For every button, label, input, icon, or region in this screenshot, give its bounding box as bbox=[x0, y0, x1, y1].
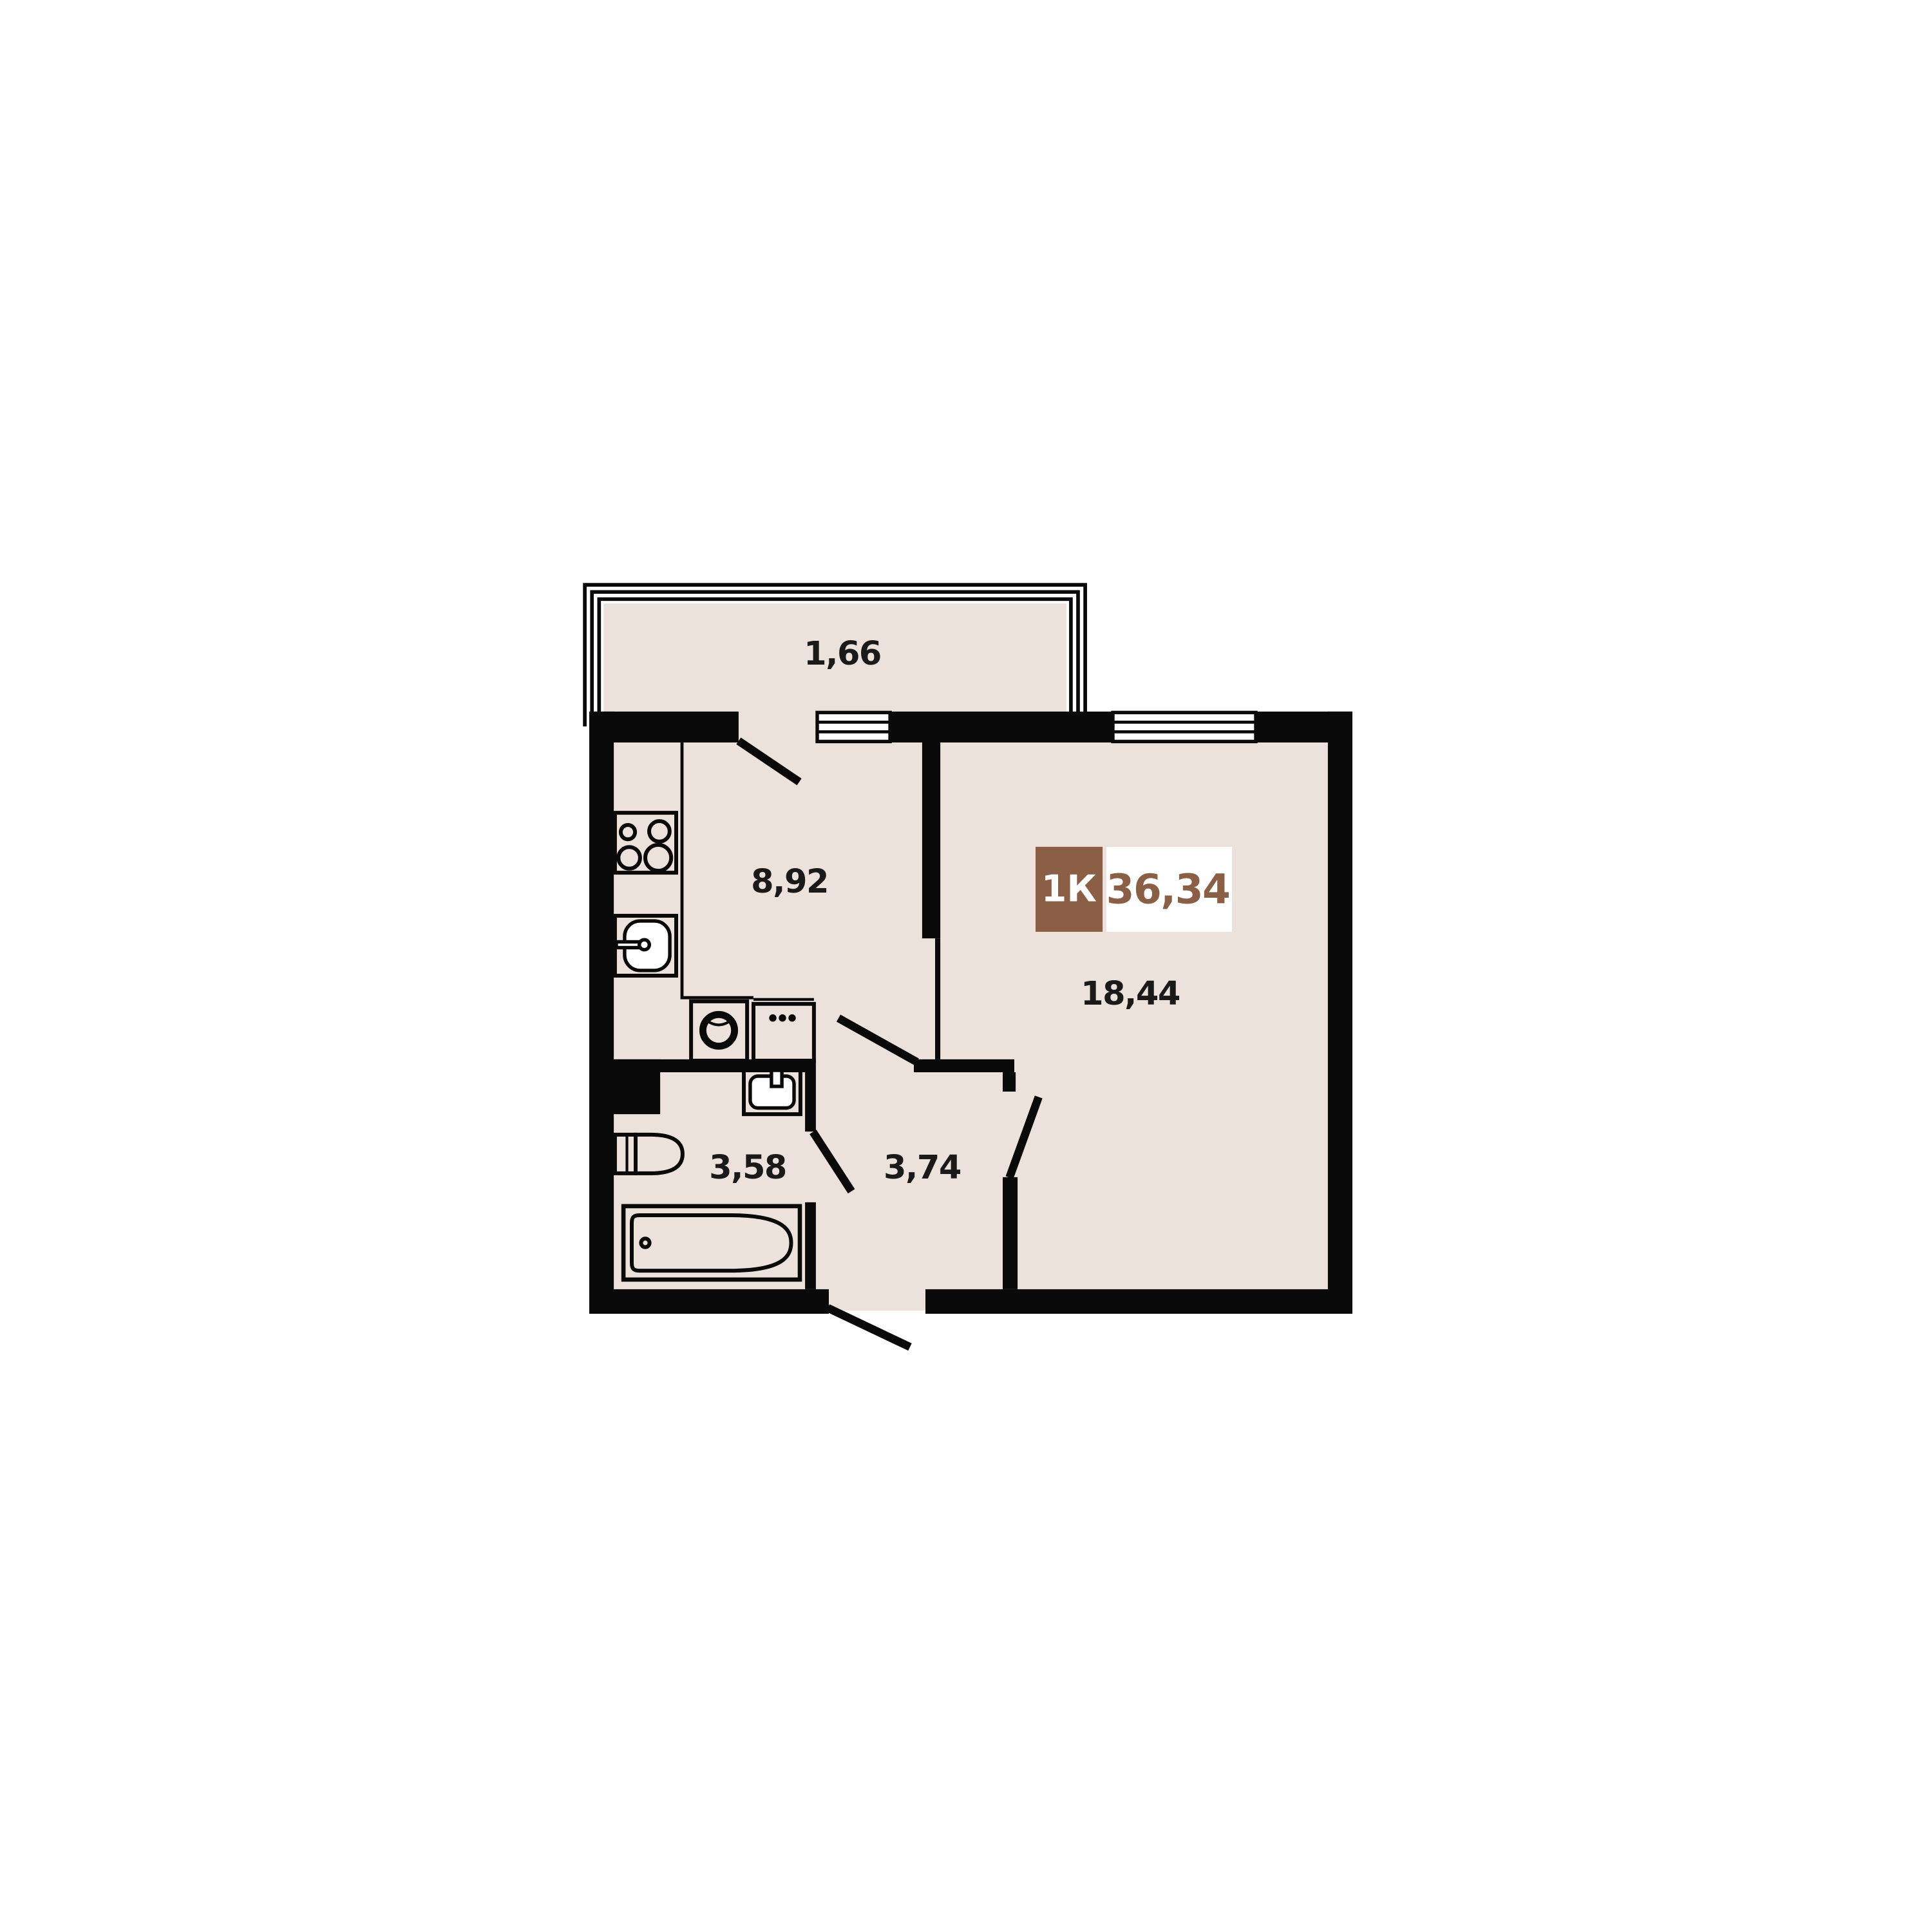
appliance-knob bbox=[769, 1014, 776, 1021]
bathroom-area-label: 3,58 bbox=[709, 1149, 786, 1187]
kitchen-area-label: 8,92 bbox=[751, 863, 828, 901]
wall-kitchen-living-thin bbox=[935, 938, 940, 1059]
toilet-bowl bbox=[636, 1135, 683, 1173]
appliance-knob bbox=[788, 1014, 795, 1021]
bathtub-basin bbox=[632, 1215, 791, 1271]
wall-bathroom-right-upper bbox=[805, 1072, 816, 1132]
balcony-door-threshold-floor bbox=[739, 711, 817, 743]
appliance-body bbox=[753, 1004, 814, 1061]
kitchen-sink-icon bbox=[615, 916, 676, 976]
toilet-tank bbox=[615, 1135, 636, 1173]
appliance-knob bbox=[779, 1014, 786, 1021]
bathtub-drain bbox=[641, 1238, 649, 1247]
hallway-area-label: 3,74 bbox=[884, 1149, 961, 1187]
burner bbox=[621, 825, 635, 839]
wall-hallway-top bbox=[914, 1059, 1014, 1072]
wall-bathroom-right-lower bbox=[805, 1202, 816, 1289]
floor-plan: 1К 36,34 1,66 8,92 18,44 3,58 3,74 bbox=[0, 0, 1932, 1932]
balcony-area-label: 1,66 bbox=[804, 635, 881, 673]
area-badge: 1К 36,34 bbox=[1036, 847, 1232, 932]
living-room-area-label: 18,44 bbox=[1081, 975, 1180, 1013]
wall-bottom-left bbox=[589, 1289, 829, 1314]
wall-kitchen-living bbox=[922, 742, 940, 938]
badge-total-area: 36,34 bbox=[1106, 866, 1230, 913]
living-room-window bbox=[1113, 712, 1256, 741]
wall-bathroom-shaft-block bbox=[589, 1059, 660, 1114]
badge-room-type: 1К bbox=[1041, 868, 1097, 911]
entrance-threshold-floor bbox=[829, 1289, 925, 1311]
wall-right bbox=[1328, 712, 1352, 1314]
stove-icon bbox=[615, 813, 676, 873]
wall-left bbox=[589, 712, 614, 1314]
burner bbox=[618, 847, 640, 869]
floor-plan-canvas: 1К 36,34 1,66 8,92 18,44 3,58 3,74 bbox=[0, 0, 1932, 1932]
burner bbox=[649, 821, 670, 842]
bath-sink-tap bbox=[772, 1070, 782, 1086]
toilet-icon bbox=[615, 1135, 683, 1173]
burner bbox=[645, 845, 671, 871]
window-icon bbox=[817, 712, 890, 741]
kitchen-window bbox=[817, 712, 890, 741]
wall-top-center bbox=[890, 712, 1113, 743]
entrance-door-swing-icon bbox=[828, 1308, 911, 1347]
sink-tap-knob bbox=[639, 940, 650, 950]
counter-appliance-icon bbox=[753, 999, 814, 1061]
washing-machine-icon bbox=[691, 1001, 747, 1061]
bathroom-sink-icon bbox=[744, 1070, 800, 1114]
wall-living-door-jamb-top bbox=[1003, 1072, 1016, 1092]
bathtub-icon bbox=[623, 1206, 800, 1280]
wall-living-hallway-lower bbox=[1003, 1177, 1018, 1289]
wall-bottom-right bbox=[925, 1289, 1352, 1314]
window-icon bbox=[1113, 712, 1256, 741]
